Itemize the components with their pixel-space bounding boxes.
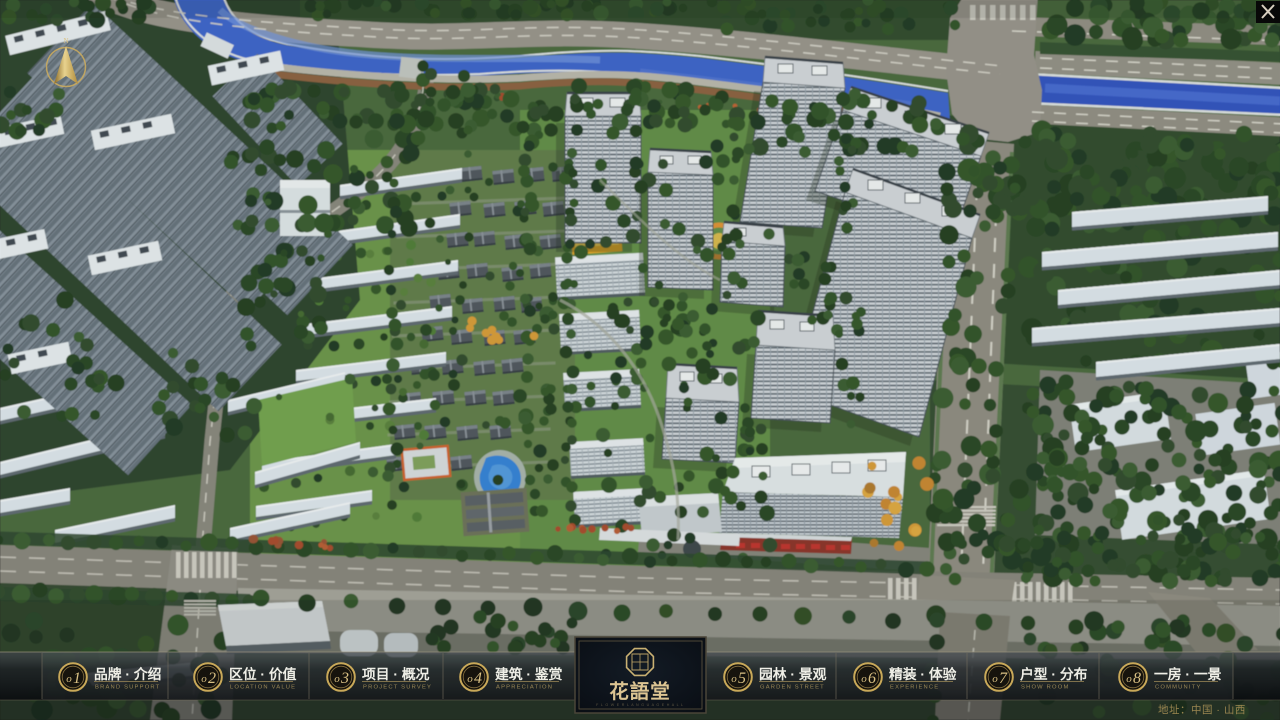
svg-text:PROJECT SURVEY: PROJECT SURVEY: [363, 685, 432, 691]
svg-text:建筑 · 鉴赏: 建筑 · 鉴赏: [495, 666, 563, 682]
svg-text:N: N: [63, 37, 68, 45]
svg-text:地址：中国 · 山西: 地址：中国 · 山西: [1158, 703, 1246, 716]
svg-text:园林 · 景观: 园林 · 景观: [759, 666, 827, 682]
svg-text:GARDEN STREET: GARDEN STREET: [760, 685, 825, 691]
svg-text:o: o: [731, 673, 737, 685]
svg-text:o: o: [992, 673, 998, 685]
svg-text:品牌 · 介绍: 品牌 · 介绍: [94, 666, 162, 682]
svg-text:o: o: [1126, 673, 1132, 685]
svg-text:2: 2: [208, 670, 216, 687]
svg-text:o: o: [861, 673, 867, 685]
svg-text:花語堂: 花語堂: [609, 680, 671, 703]
svg-text:BRAND SUPPORT: BRAND SUPPORT: [95, 685, 160, 691]
svg-text:o: o: [467, 673, 473, 685]
svg-text:F L O W E R L A N G U A G E: F L O W E R L A N G U A G E H A L L: [596, 703, 684, 707]
svg-text:5: 5: [738, 670, 746, 687]
svg-text:户型 · 分布: 户型 · 分布: [1020, 666, 1088, 682]
svg-text:6: 6: [868, 670, 876, 687]
svg-text:7: 7: [999, 670, 1008, 687]
svg-text:一房 · 一景: 一房 · 一景: [1154, 666, 1222, 682]
svg-text:EXPERIENCE: EXPERIENCE: [890, 685, 939, 691]
svg-text:精装 · 体验: 精装 · 体验: [889, 666, 957, 682]
svg-text:SHOW ROOM: SHOW ROOM: [1021, 685, 1069, 691]
svg-text:4: 4: [474, 670, 482, 687]
svg-text:APPRECIATION: APPRECIATION: [496, 685, 553, 691]
svg-text:8: 8: [1133, 670, 1141, 687]
svg-text:o: o: [334, 673, 340, 685]
svg-text:LOCATION VALUE: LOCATION VALUE: [230, 685, 296, 691]
svg-text:o: o: [66, 673, 72, 685]
svg-text:COMMUNITY: COMMUNITY: [1155, 685, 1202, 691]
svg-text:3: 3: [340, 670, 349, 687]
svg-text:1: 1: [73, 670, 81, 687]
svg-text:区位 · 价值: 区位 · 价值: [229, 666, 297, 682]
svg-text:项目 · 概况: 项目 · 概况: [362, 666, 430, 682]
svg-text:o: o: [201, 673, 207, 685]
